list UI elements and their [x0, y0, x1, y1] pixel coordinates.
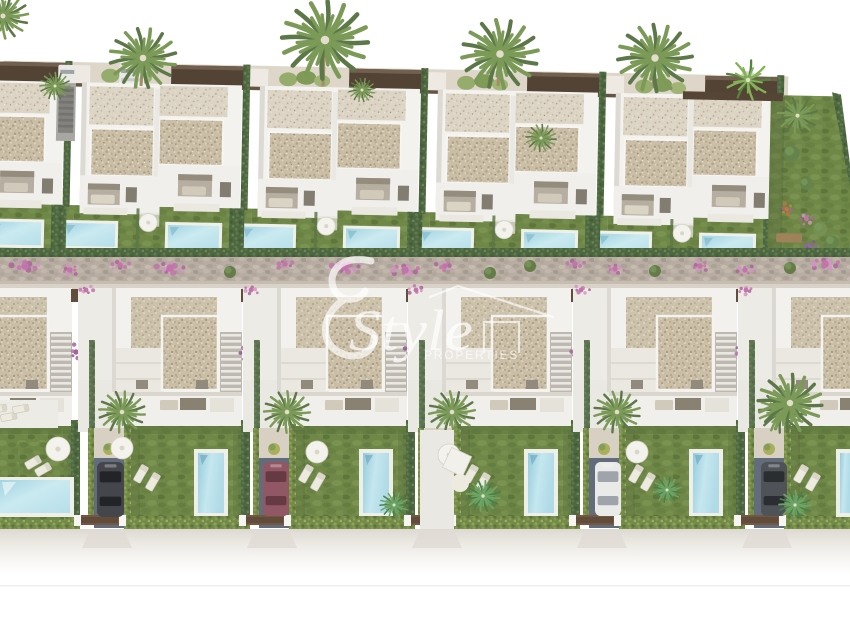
svg-text:PROPERTIES: PROPERTIES: [424, 348, 519, 362]
